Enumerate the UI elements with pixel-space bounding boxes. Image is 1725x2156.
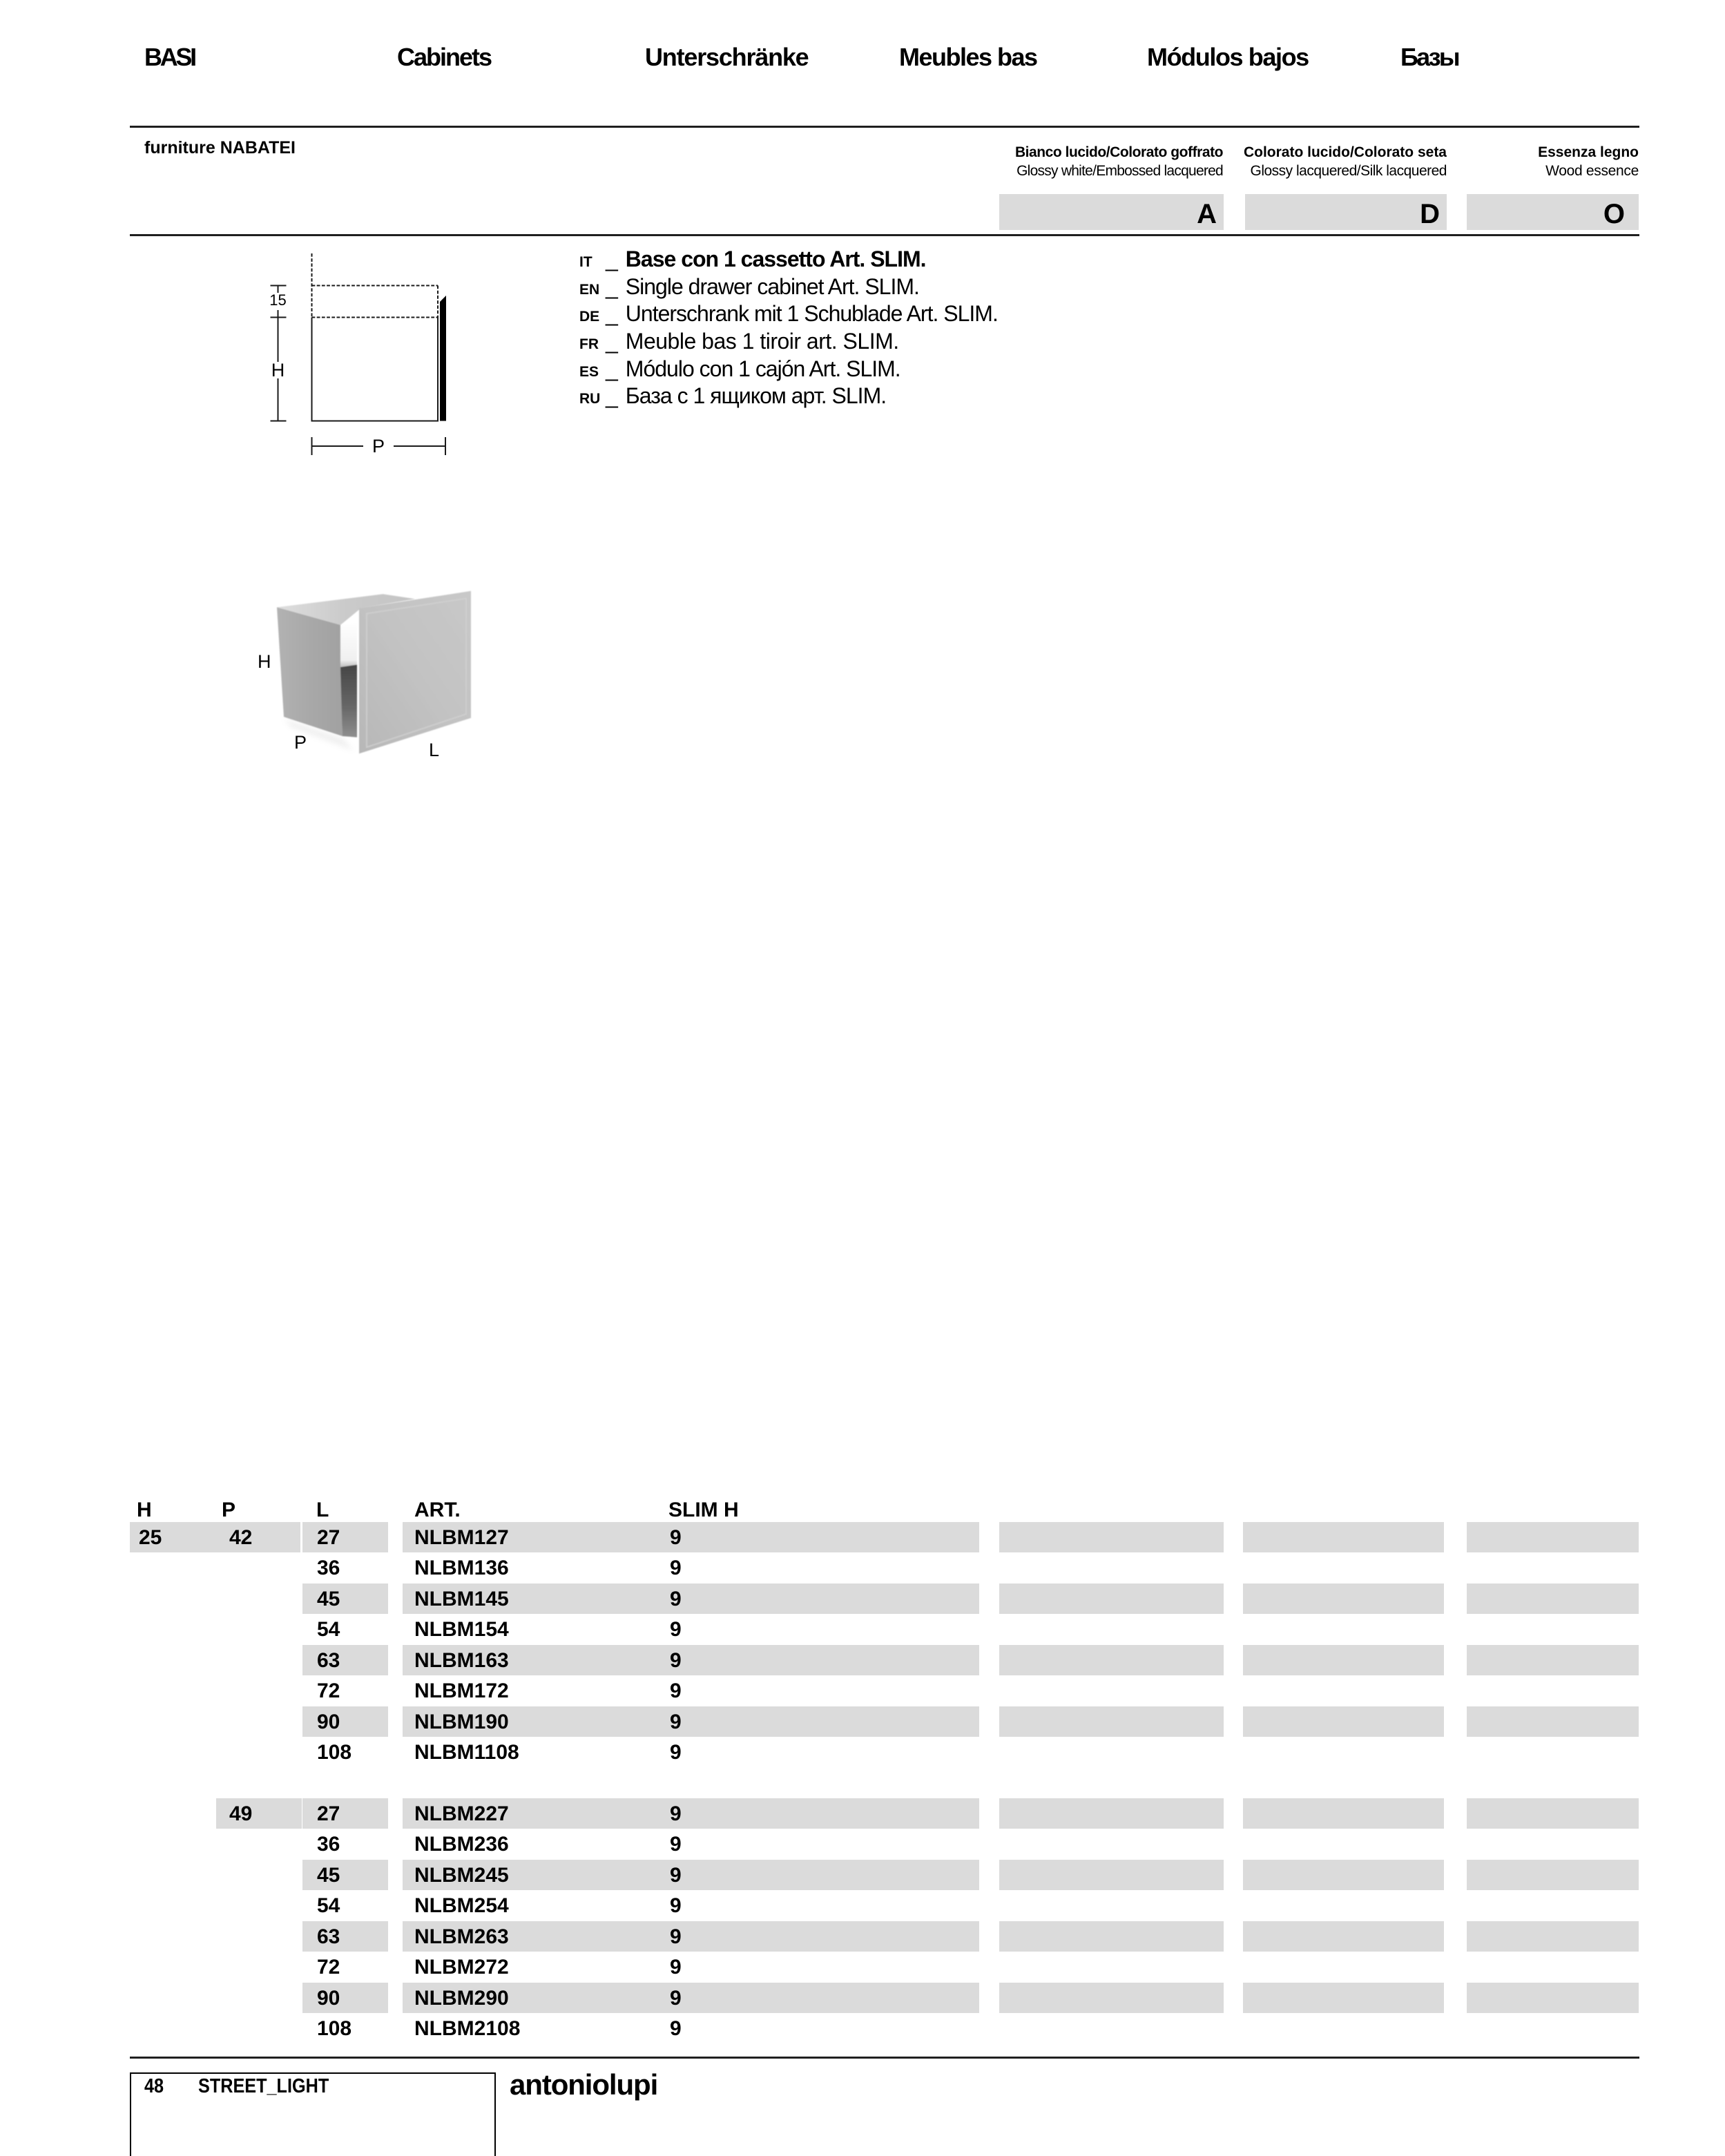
svg-text:H: H — [258, 651, 271, 672]
svg-text:P: P — [294, 732, 307, 753]
svg-text:H: H — [271, 360, 285, 381]
svg-text:L: L — [429, 740, 439, 760]
svg-text:P: P — [372, 436, 385, 456]
svg-text:15: 15 — [269, 291, 286, 309]
